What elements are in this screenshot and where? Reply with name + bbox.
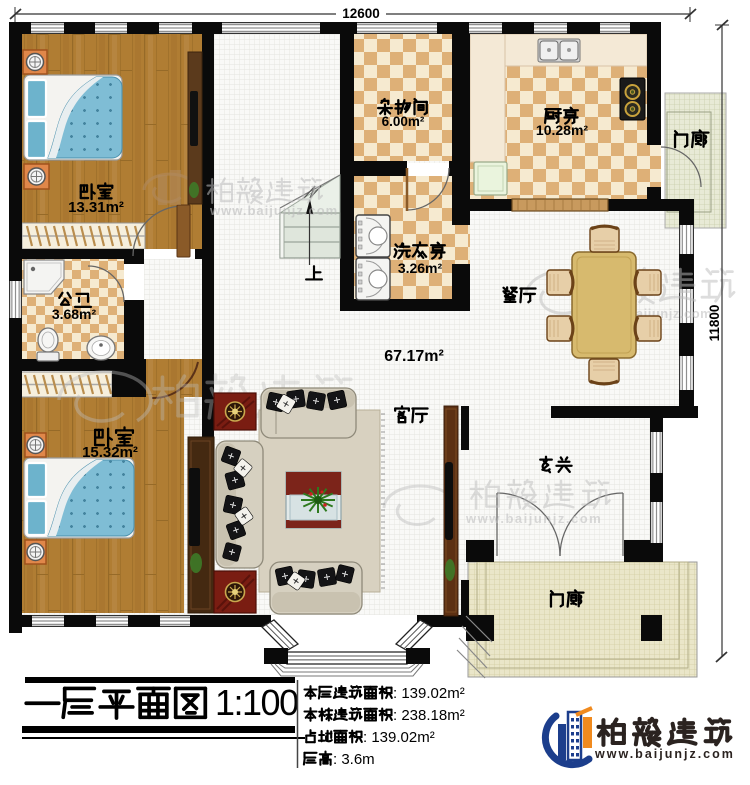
svg-text:: 238.18m²: : 238.18m² <box>393 707 465 724</box>
svg-text:: 3.6m: : 3.6m <box>333 751 375 768</box>
svg-text:3.26m²: 3.26m² <box>398 260 443 276</box>
svg-text:15.32m²: 15.32m² <box>82 444 138 461</box>
svg-text:1:100: 1:100 <box>215 682 298 723</box>
svg-text:www.baijunjz.com: www.baijunjz.com <box>209 203 338 218</box>
svg-text:www.baijunjz.com: www.baijunjz.com <box>594 747 735 761</box>
svg-text:13.31m²: 13.31m² <box>68 199 124 216</box>
svg-text:67.17m²: 67.17m² <box>384 348 444 365</box>
svg-text:11800: 11800 <box>707 305 722 342</box>
svg-text:10.28m²: 10.28m² <box>536 122 588 138</box>
svg-text:: 139.02m²: : 139.02m² <box>363 729 435 746</box>
svg-text:3.68m²: 3.68m² <box>52 306 97 322</box>
svg-text:12600: 12600 <box>342 6 380 21</box>
svg-text:: 139.02m²: : 139.02m² <box>393 685 465 702</box>
svg-text:6.00m²: 6.00m² <box>382 114 425 129</box>
svg-text:www.baijunjz.com: www.baijunjz.com <box>465 511 602 526</box>
